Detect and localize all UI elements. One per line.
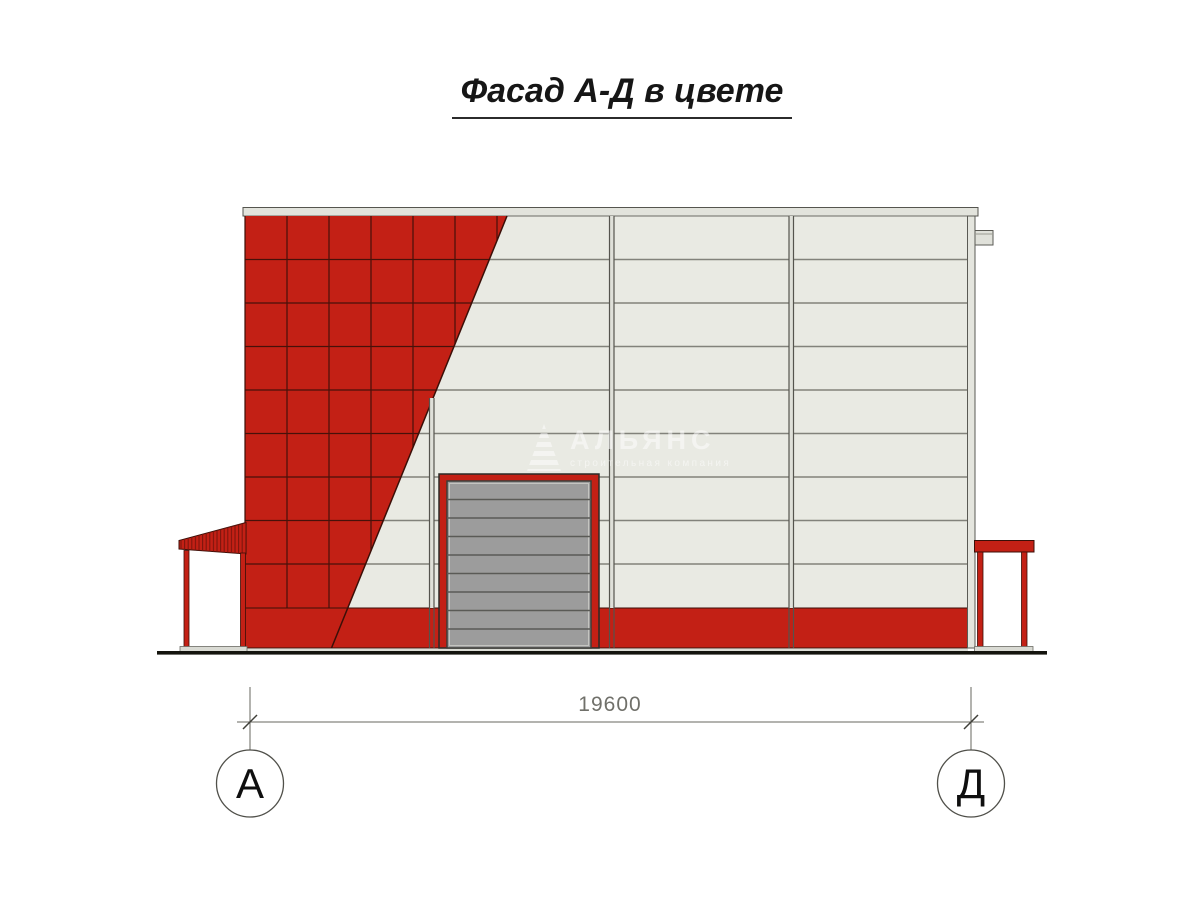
drawing-sheet: Фасад А-Д в цвете: [0, 0, 1200, 900]
canopy-beam: [975, 541, 1035, 553]
canopy-post: [184, 551, 189, 649]
axis-label-d: Д: [931, 744, 1011, 824]
garage-door-panel: [447, 481, 591, 648]
dimension-value: 19600: [555, 693, 665, 717]
roof-drain-outlet: [975, 231, 993, 246]
garage-door: [439, 474, 599, 648]
facade-elevation-drawing: [0, 0, 1200, 900]
canopy-post: [1022, 552, 1028, 647]
ground-line: [157, 651, 1047, 655]
canopy-post: [978, 552, 984, 647]
canopy-corrugation: [179, 523, 246, 555]
right-canopy: [975, 541, 1035, 653]
plinth-base-strip: [245, 648, 968, 651]
canopy-post: [241, 553, 246, 647]
axis-label-a: А: [210, 744, 290, 824]
right-corner-column: [968, 216, 976, 648]
parapet-coping: [243, 208, 978, 217]
red-plinth: [245, 608, 968, 648]
left-canopy: [179, 523, 247, 653]
